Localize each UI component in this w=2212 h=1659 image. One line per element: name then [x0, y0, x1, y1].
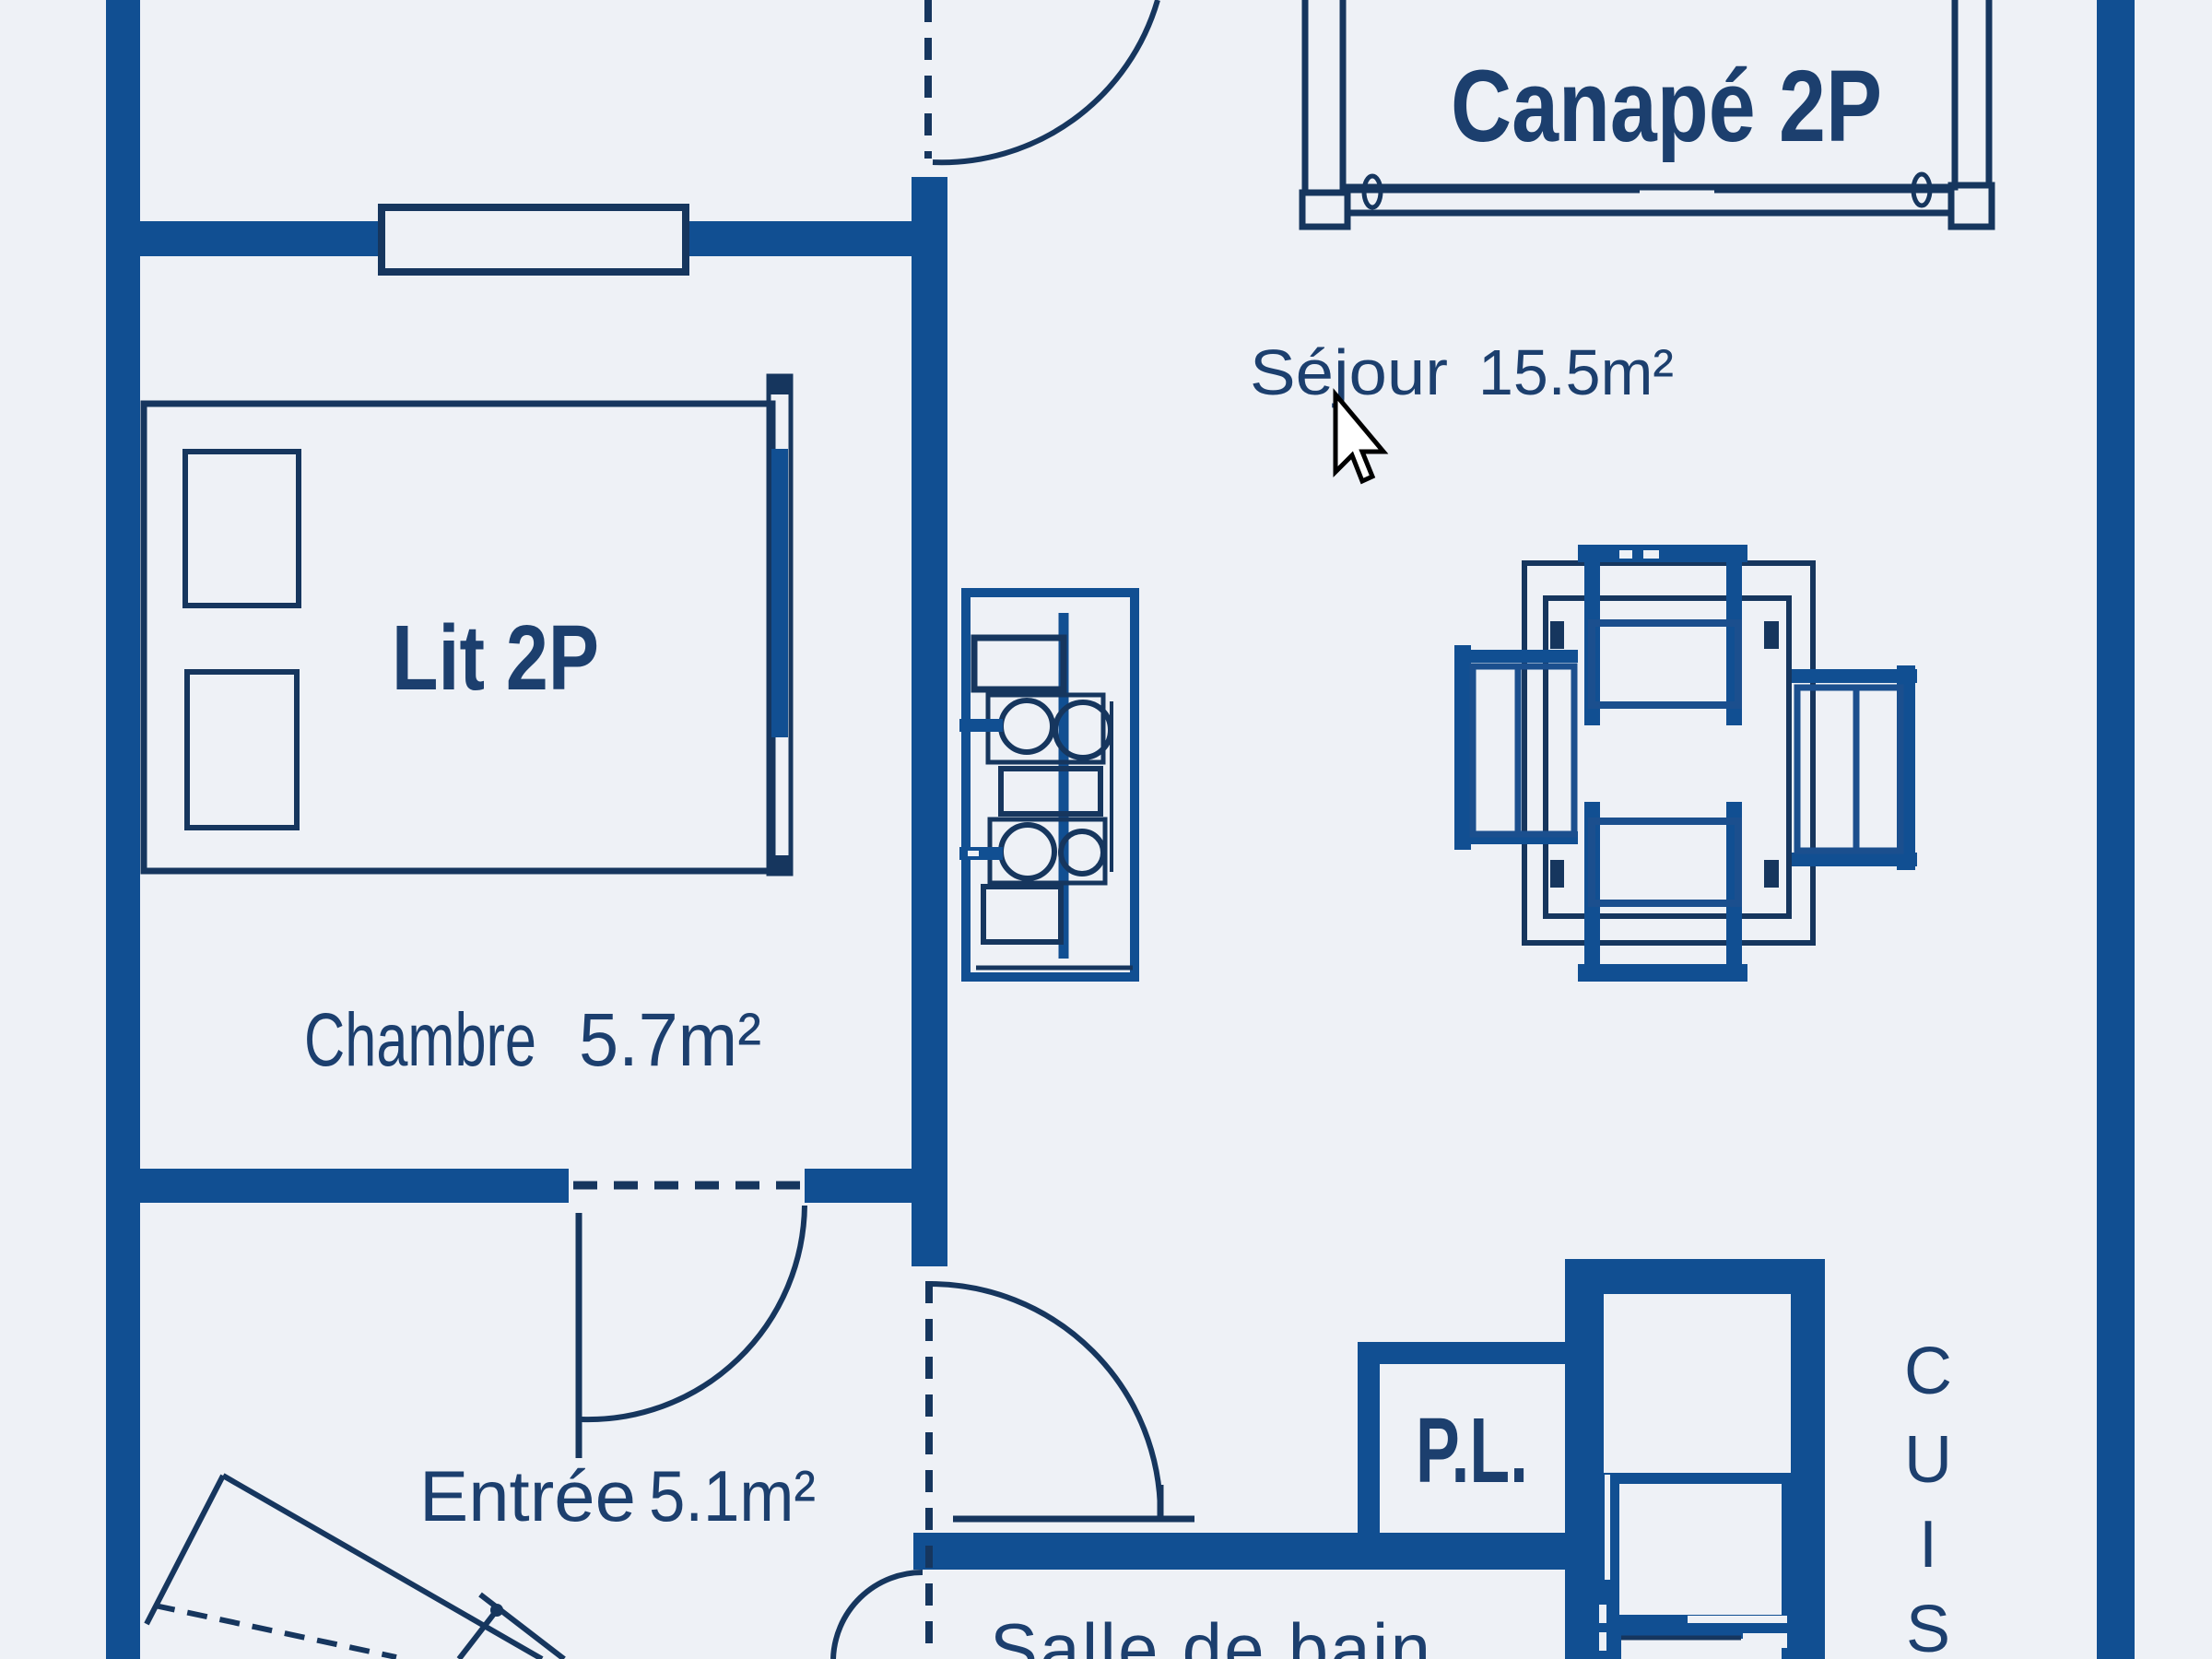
svg-text:Entrée: Entrée	[419, 1455, 636, 1536]
svg-text:S: S	[1906, 1593, 1950, 1659]
svg-text:C: C	[1904, 1335, 1952, 1408]
svg-text:15.5m²: 15.5m²	[1478, 336, 1674, 408]
svg-text:5.7m²: 5.7m²	[579, 998, 761, 1082]
svg-text:5.1m²: 5.1m²	[649, 1455, 816, 1536]
svg-text:Salle de bain: Salle de bain	[990, 1608, 1430, 1659]
svg-text:P.L.: P.L.	[1416, 1399, 1528, 1502]
svg-text:Canapé 2P: Canapé 2P	[1451, 50, 1882, 163]
svg-text:I: I	[1919, 1508, 1937, 1582]
svg-text:U: U	[1904, 1423, 1952, 1497]
svg-text:Lit 2P: Lit 2P	[392, 606, 599, 710]
svg-text:Séjour: Séjour	[1250, 336, 1448, 408]
svg-text:Chambre: Chambre	[304, 998, 536, 1082]
